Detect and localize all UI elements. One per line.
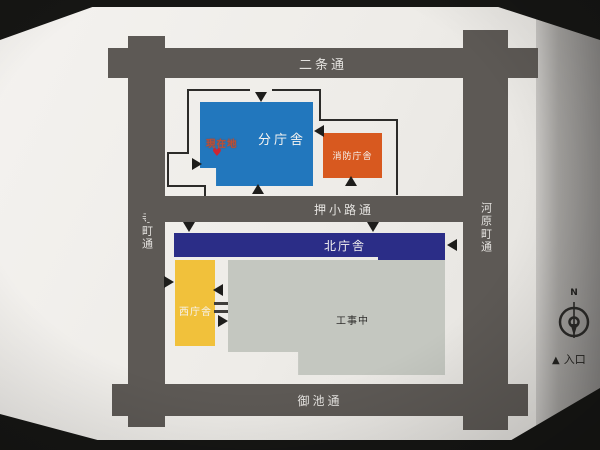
building-label-branch: 分庁舎 (258, 129, 306, 148)
entrance-arrow-icon (255, 92, 267, 102)
sign-side-area (536, 6, 600, 440)
entrance-arrow-icon (183, 222, 195, 232)
entrance-arrow-icon (213, 284, 223, 296)
passage-line (214, 310, 228, 313)
building-label-fire-station: 消防庁舎 (332, 149, 372, 162)
entrance-arrow-icon (447, 239, 457, 251)
entrance-arrow-icon (345, 176, 357, 186)
street-oshikoji: 押小路通 (146, 196, 480, 222)
legend-entrance: ▲入口 (552, 351, 586, 367)
entrance-legend-triangle-icon: ▲ (552, 355, 560, 366)
entrance-arrow-icon (164, 276, 174, 288)
building-fire-station: 消防庁舎 (323, 133, 382, 178)
entrance-legend-label: 入口 (564, 353, 586, 366)
building-label-west: 西庁舎 (179, 303, 212, 318)
building-label-north: 北庁舎 (324, 237, 366, 254)
passage-line (214, 302, 228, 305)
street-label-nijo: 二条通 (299, 54, 347, 73)
building-north: 北庁舎 (174, 233, 445, 257)
building-west: 西庁舎 (175, 260, 215, 346)
compass: N (552, 288, 596, 352)
street-kawaramachi: 河原町通 (463, 30, 508, 430)
compass-icon (552, 296, 596, 348)
current-location-heart-icon: ♥ (212, 147, 222, 158)
photo-frame: 寺町通 河原町通 二条通 押小路通 御池通 分庁舎 現在地 ♥ 消防庁舎 北庁舎… (0, 0, 600, 450)
construction-area-label: 工事中 (336, 312, 369, 327)
street-nijo: 二条通 (108, 48, 538, 78)
entrance-arrow-icon (367, 222, 379, 232)
street-oike: 御池通 (112, 384, 528, 416)
street-label-oshikoji: 押小路通 (252, 201, 374, 218)
street-label-oike: 御池通 (297, 392, 342, 409)
entrance-arrow-icon (218, 315, 228, 327)
street-teramachi: 寺町通 (128, 36, 165, 427)
entrance-arrow-icon (252, 184, 264, 194)
entrance-arrow-icon (314, 125, 324, 137)
entrance-arrow-icon (192, 158, 202, 170)
